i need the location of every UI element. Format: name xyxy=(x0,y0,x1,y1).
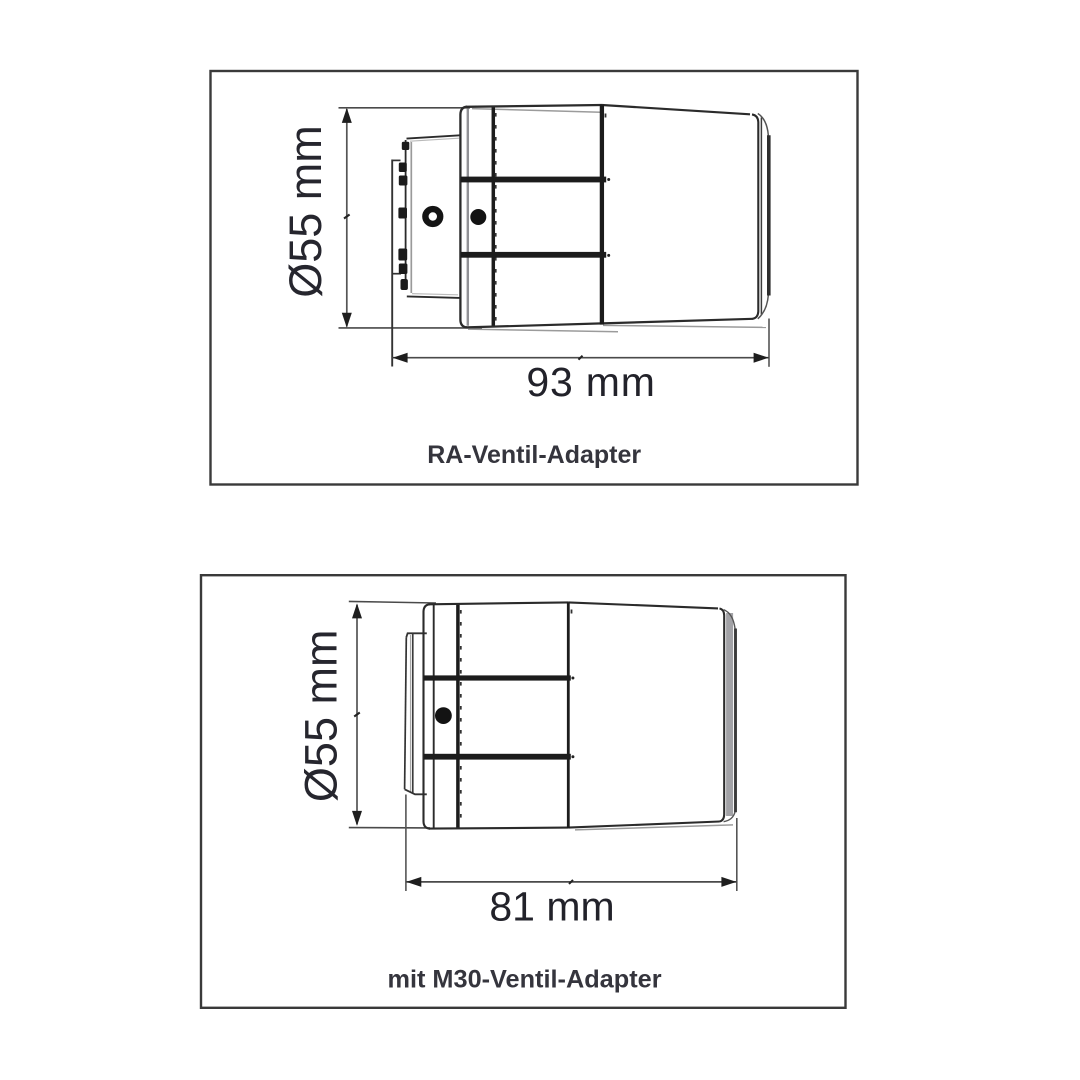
svg-text:mit M30-Ventil-Adapter: mit M30-Ventil-Adapter xyxy=(387,965,661,993)
svg-text:RA-Ventil-Adapter: RA-Ventil-Adapter xyxy=(427,441,641,469)
svg-text:93 mm: 93 mm xyxy=(526,359,655,405)
svg-text:Ø55 mm: Ø55 mm xyxy=(280,125,331,298)
svg-text:Ø55 mm: Ø55 mm xyxy=(296,630,347,803)
svg-text:81 mm: 81 mm xyxy=(489,884,614,930)
